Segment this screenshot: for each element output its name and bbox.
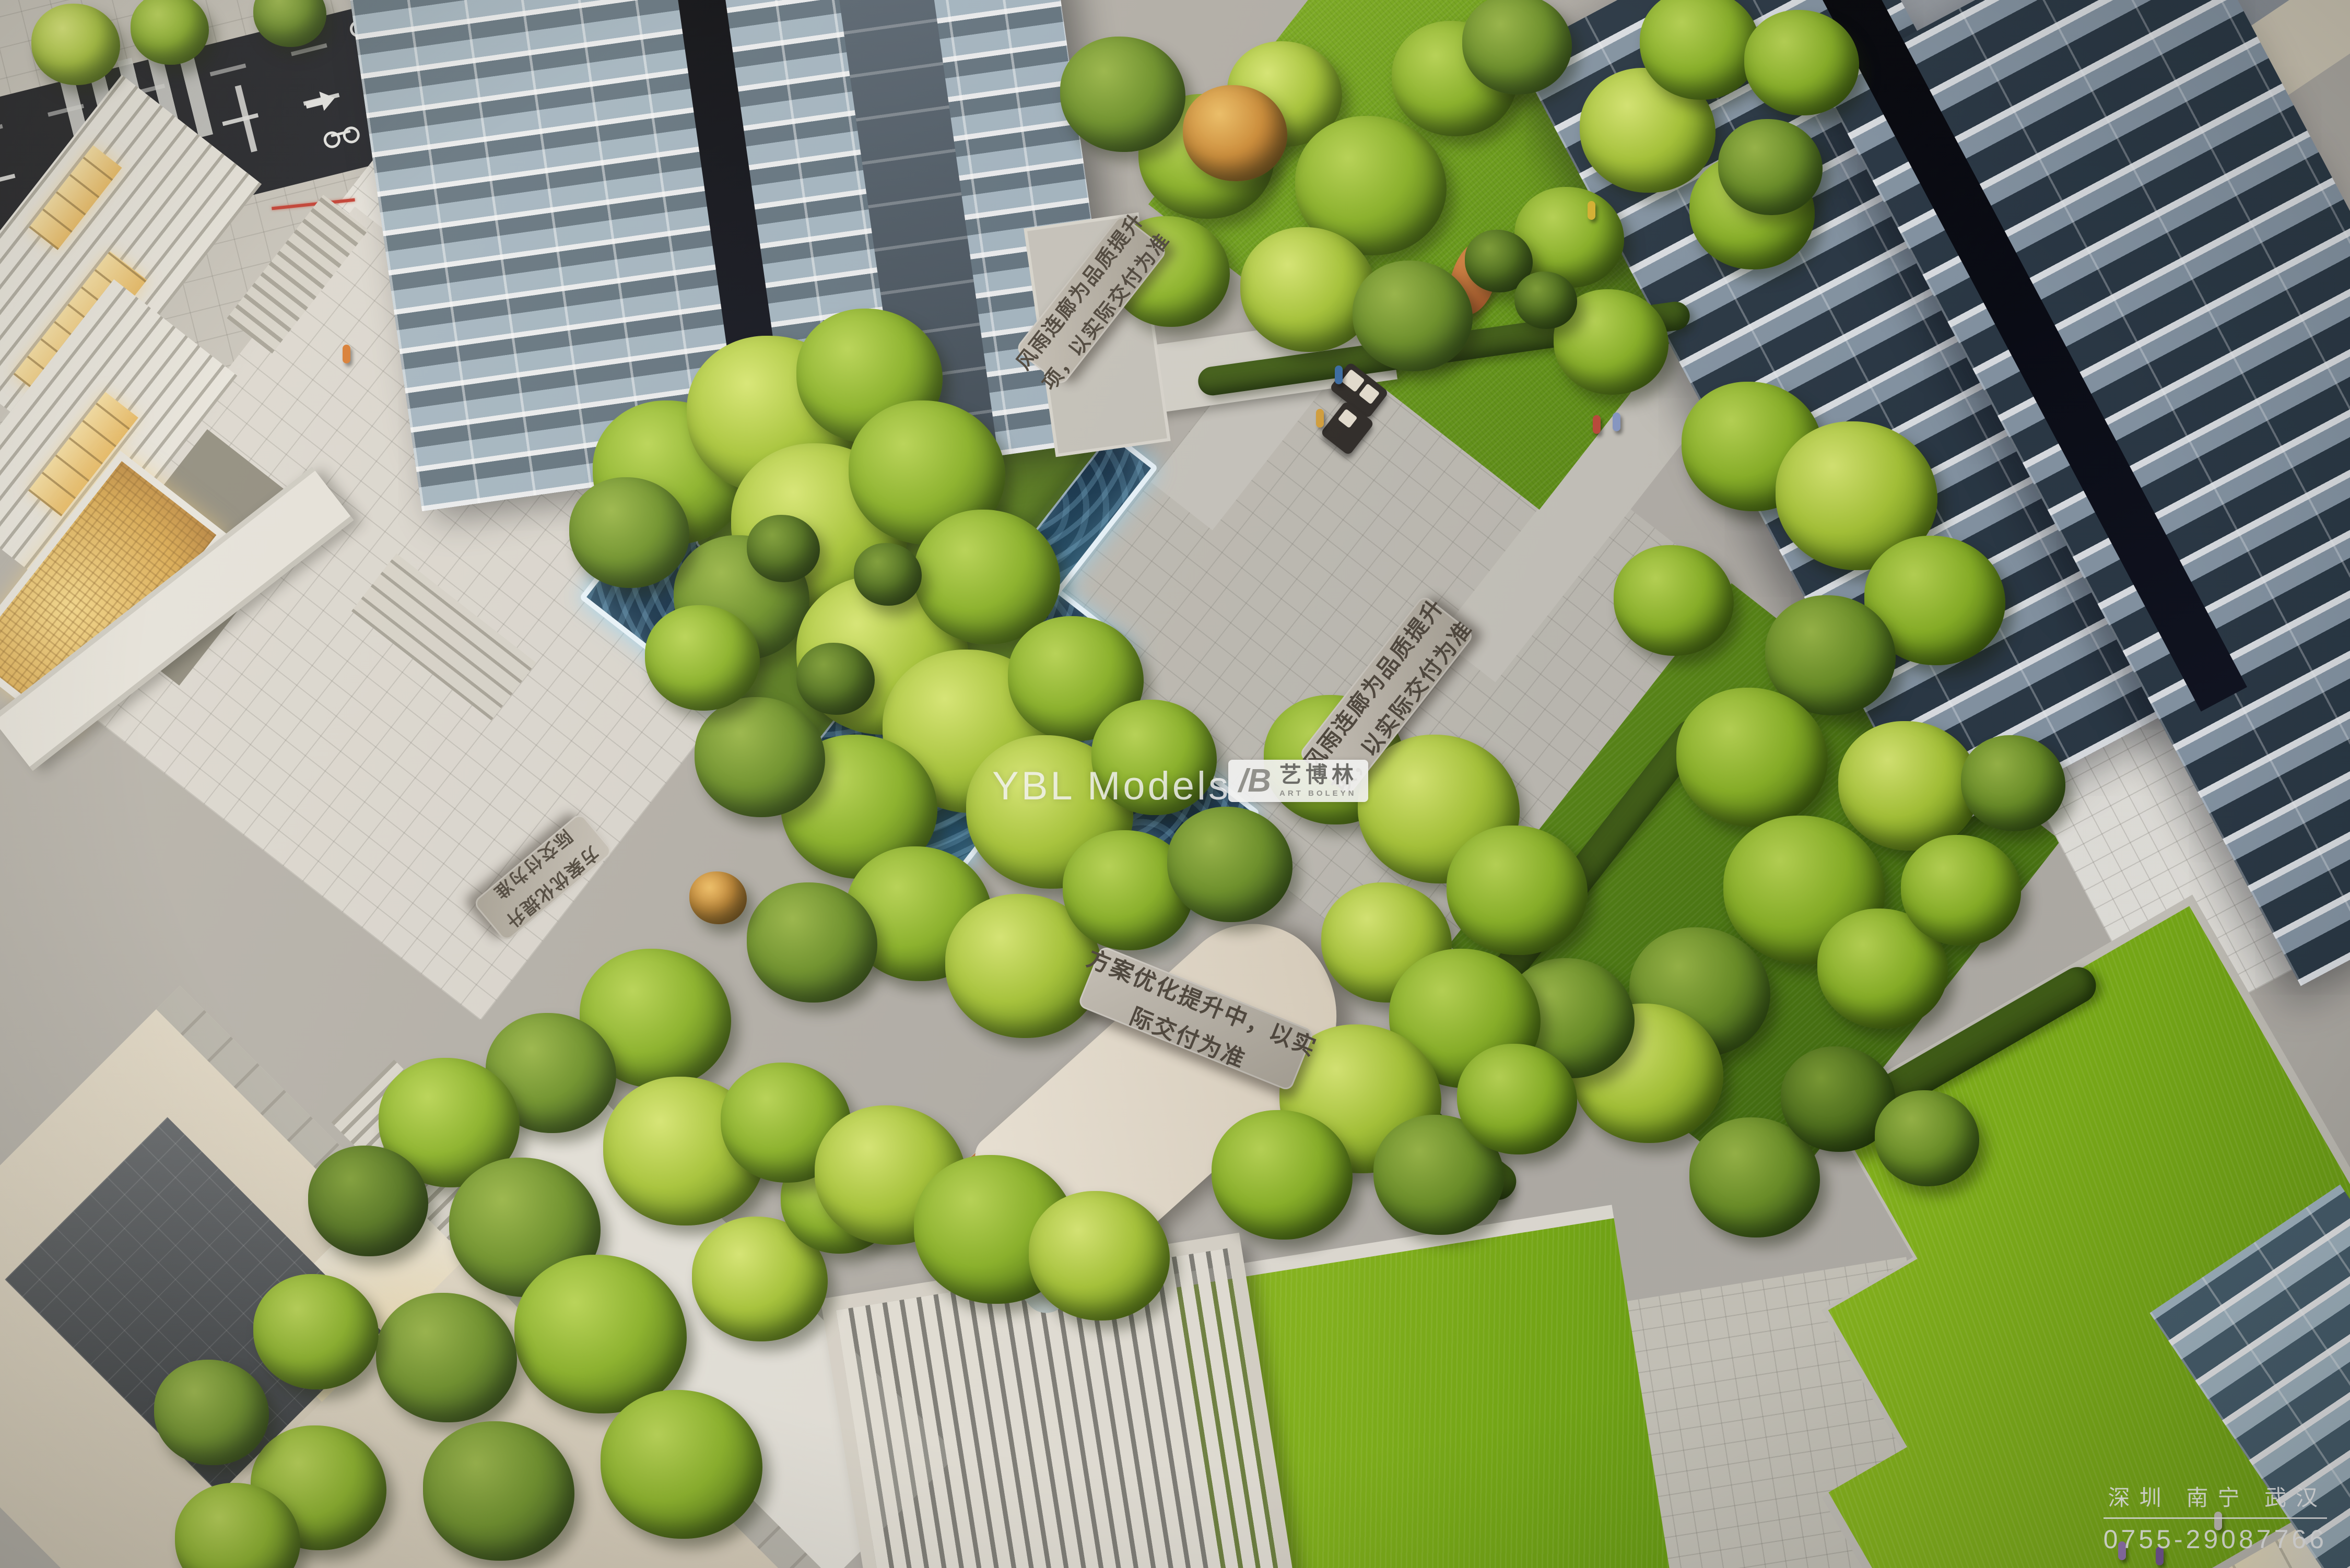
person-figure bbox=[1316, 409, 1324, 428]
architectural-model-photo: 风雨连廊为品质提升 项，以实际交付为准 风雨连廊为品质提升 项，以实际交付为准 … bbox=[0, 0, 2350, 1568]
watermark-logo-badge: /B 艺博林 ART BOLEYN bbox=[1228, 760, 1368, 802]
watermark-brand: YBL Models bbox=[992, 763, 1231, 809]
watermark-phone: 0755-29087766 bbox=[2104, 1524, 2327, 1554]
logo-mark-icon: /B bbox=[1239, 767, 1271, 796]
person-figure bbox=[1588, 201, 1595, 220]
logo-cn-text: 艺博林 bbox=[1279, 764, 1358, 786]
person-figure bbox=[1613, 412, 1620, 431]
person-figure bbox=[1593, 415, 1601, 434]
logo-en-text: ART BOLEYN bbox=[1279, 789, 1357, 798]
person-figure bbox=[343, 345, 350, 363]
watermark-cities: 深圳 南宁 武汉 bbox=[2104, 1480, 2327, 1519]
person-figure bbox=[1335, 366, 1343, 384]
watermark-contact: 深圳 南宁 武汉 0755-29087766 bbox=[2104, 1480, 2327, 1554]
